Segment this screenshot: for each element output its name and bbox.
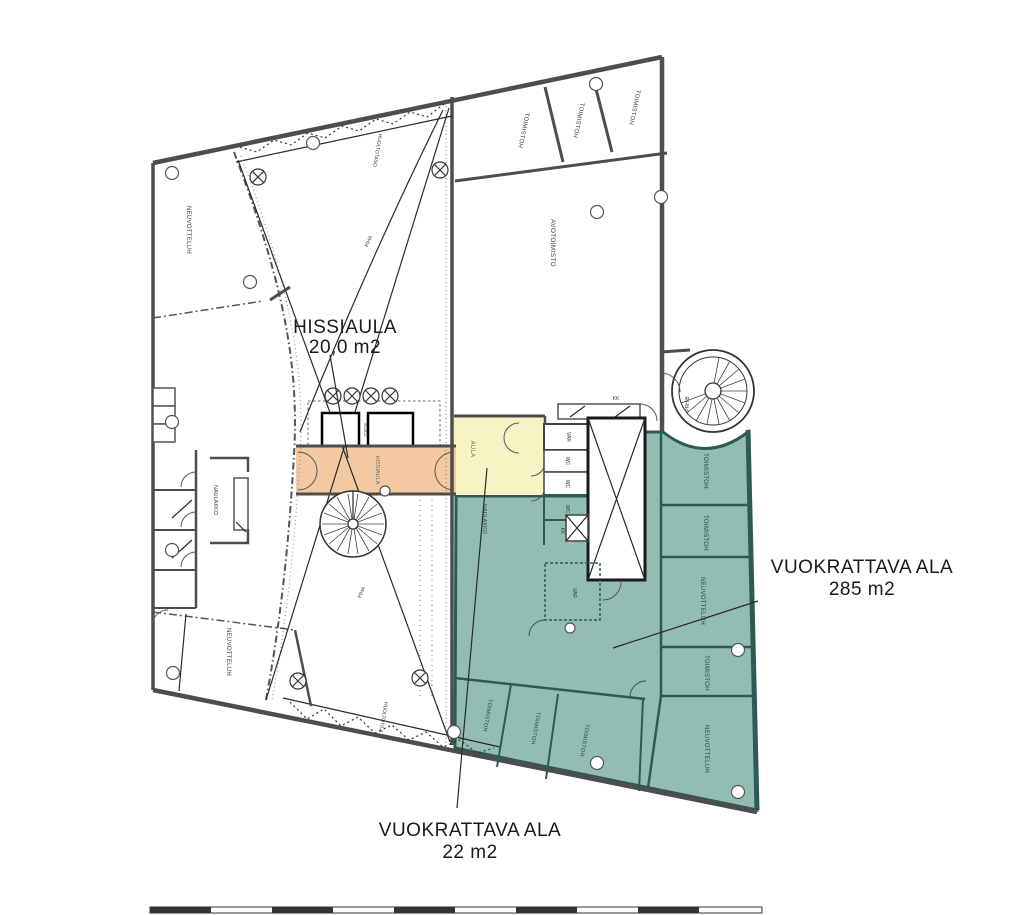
room-label-huoltotila: HUOLTOTILA <box>377 701 388 733</box>
column-symbol <box>363 388 379 404</box>
spiral-stair-center <box>320 491 386 557</box>
grid-bubble <box>591 206 604 219</box>
room-label-kk-small: KK <box>559 528 565 535</box>
grid-bubble <box>448 726 461 739</box>
room-label-var2: VAR <box>571 588 577 598</box>
lobby-22-fill <box>454 416 545 495</box>
room-label-var1: VAR <box>565 432 571 442</box>
meeting-bottom-left-wall <box>153 612 295 630</box>
room-label: NEUVOTTELUH <box>703 725 709 773</box>
grid-bubble <box>655 191 668 204</box>
floor-plan-drawing: TOIMISTOH TOIMISTOH TOIMISTOH AVOTOIMIST… <box>0 0 1020 915</box>
band-partition-1 <box>545 87 563 162</box>
room-label-wc2: WC <box>564 480 570 489</box>
rentable-285-area: 285 m2 <box>829 579 895 600</box>
room-label-wc1: WC <box>564 457 570 466</box>
meeting-top-left-wall <box>153 301 263 318</box>
void-diagonal-2 <box>266 108 449 700</box>
grid-bubble <box>167 667 180 680</box>
room-label-wc3: WC <box>564 505 570 514</box>
room-label-prhb: PRH B <box>685 396 691 412</box>
room-label-kk-top: KK <box>613 396 620 402</box>
room-label-hissiaula-small: HISSIAULA <box>374 456 380 485</box>
grid-bubble <box>732 786 745 799</box>
grid-bubble <box>591 757 604 770</box>
column-symbol <box>344 388 360 404</box>
room-label: TOIMISTOH <box>702 453 708 489</box>
rentable-22-title: VUOKRATTAVA ALA <box>379 820 561 841</box>
column-symbol <box>432 162 448 178</box>
elevator-2 <box>368 413 413 446</box>
grid-bubble <box>565 623 575 633</box>
meeting-bottom-left-side-wall <box>295 630 311 706</box>
room-label-aula: AULA <box>469 441 475 458</box>
scale-bar <box>150 907 762 913</box>
grid-bubble <box>732 644 745 657</box>
void-arc <box>300 110 443 432</box>
room-label: NEUVOTTELUH <box>699 577 705 625</box>
truss-zigzag-top <box>240 104 444 152</box>
lobby-22-zone <box>454 416 545 495</box>
room-label-huoltotaso: HUOLTOTASO <box>371 133 383 167</box>
grid-bubble <box>244 276 257 289</box>
column-symbol <box>382 388 398 404</box>
hissiaula-title: HISSIAULA <box>293 317 397 338</box>
grid-bubble <box>590 78 603 91</box>
column-symbol <box>290 673 306 689</box>
top-outer-wall <box>153 57 662 163</box>
grid-bubble <box>166 544 179 557</box>
spiral-stair-prhb: PRH B <box>661 350 754 432</box>
room-label-avotoimisto: AVOTOIMISTO <box>549 219 556 267</box>
column-symbol <box>412 670 428 686</box>
grid-bubble <box>166 416 179 429</box>
room-label: TOIMISTOH <box>516 112 529 148</box>
meeting-bottom-left-partition <box>179 614 186 691</box>
floor-plan-page: TOIMISTOH TOIMISTOH TOIMISTOH AVOTOIMIST… <box>0 0 1020 915</box>
grid-bubble <box>380 486 390 496</box>
room-label-neuvotteluh-bl: NEUVOTTELUH <box>225 628 231 676</box>
grid-bubble <box>166 167 179 180</box>
column-symbol <box>250 169 266 185</box>
label-piha-2: PIHA <box>357 585 367 599</box>
top-office-band: TOIMISTOH TOIMISTOH TOIMISTOH <box>455 85 667 181</box>
curved-facade-inner <box>241 156 301 700</box>
room-label: TOIMISTOH <box>702 515 708 551</box>
label-piha-1: PIHA <box>364 234 374 248</box>
room-label-neuvotteluh-tl: NEUVOTTELUH <box>185 206 191 254</box>
stair-wall-stub <box>661 350 690 352</box>
rentable-285-title: VUOKRATTAVA ALA <box>771 557 953 578</box>
room-label: TOIMISTOH <box>571 102 584 138</box>
hissiaula-area: 20,0 m2 <box>309 337 381 358</box>
band-partition-2 <box>595 85 612 152</box>
room-label: TOIMISTOH <box>703 655 709 691</box>
cabinet-1 <box>153 388 175 406</box>
room-label: TOIMISTOH <box>627 89 640 125</box>
room-label-naulakko-left: NAULAKKO <box>212 485 218 516</box>
room-label-kuilu: KUILU <box>363 423 368 436</box>
grid-bubble <box>307 137 320 150</box>
rentable-22-area: 22 m2 <box>442 842 497 863</box>
